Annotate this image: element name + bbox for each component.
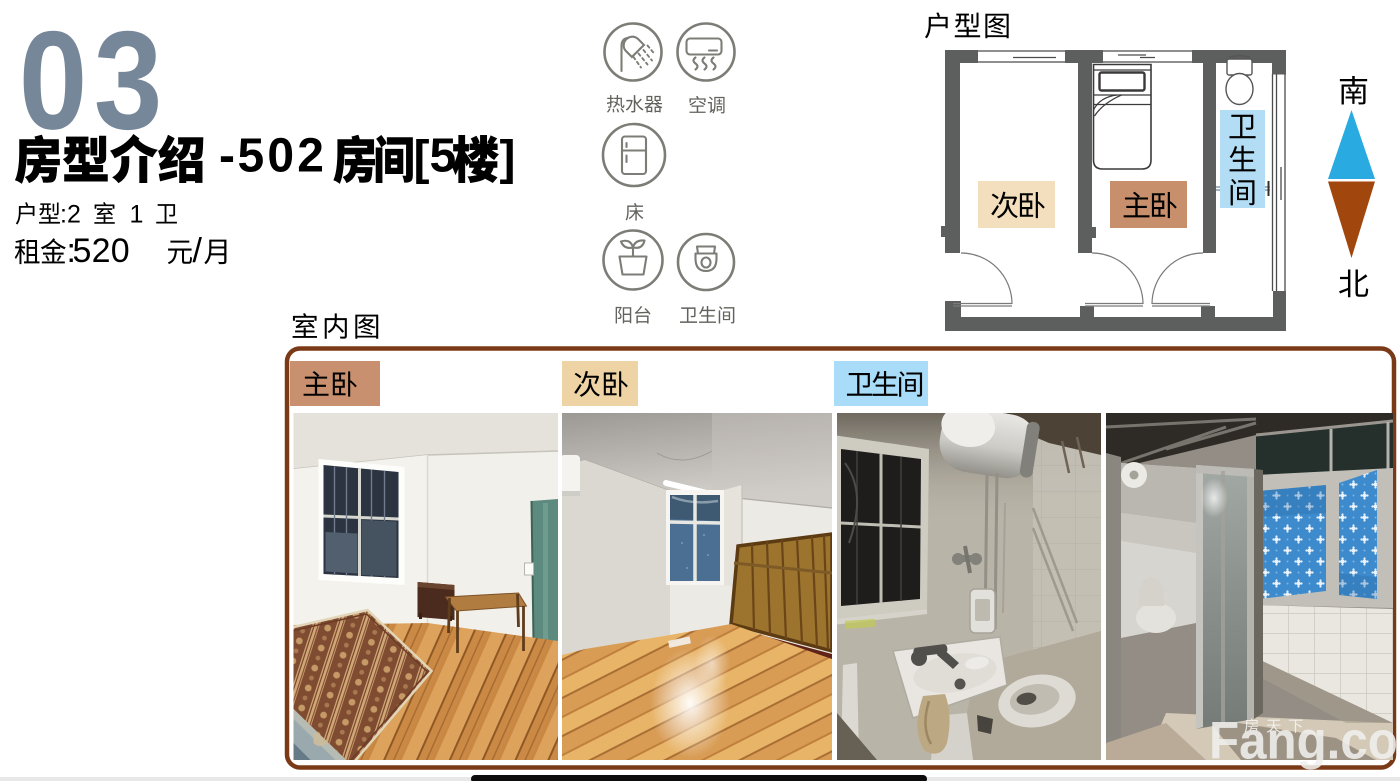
svg-text:Fang.com: Fang.com (1209, 711, 1400, 770)
svg-text:]: ] (500, 132, 516, 185)
svg-text:5: 5 (430, 130, 457, 183)
svg-text:520: 520 (73, 232, 130, 270)
svg-text:502: 502 (238, 130, 328, 183)
svg-text:-: - (219, 130, 235, 183)
svg-text:[: [ (414, 132, 430, 185)
svg-text:1: 1 (130, 201, 144, 229)
svg-text:/: / (193, 232, 203, 270)
svg-text:03: 03 (19, 2, 169, 158)
svg-text::2: :2 (60, 201, 81, 229)
